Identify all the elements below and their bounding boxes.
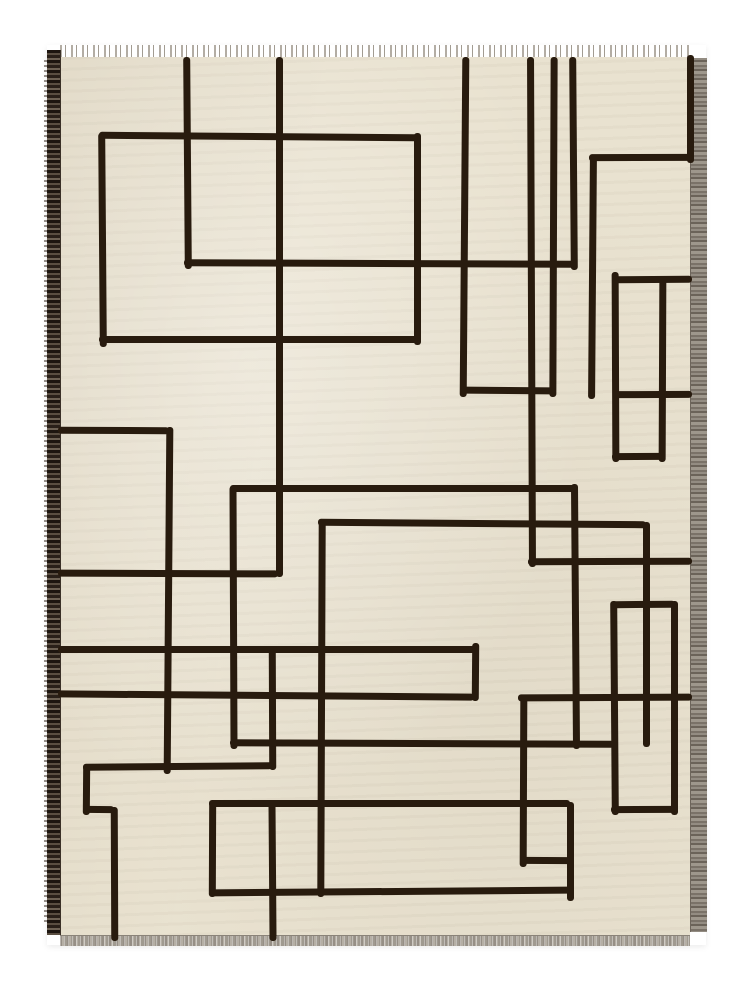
rug-pattern-line (460, 57, 470, 397)
rug-pattern-line (230, 739, 614, 747)
rug-pattern-line (183, 57, 192, 269)
rug-pattern-line (58, 427, 169, 434)
rug-pattern-line (518, 694, 692, 702)
rug-pattern-line (99, 336, 418, 343)
rug-pattern-line (230, 485, 576, 492)
rug-pattern-line (58, 646, 476, 653)
rug-pattern-line (643, 522, 650, 747)
rug-pattern-line (589, 154, 692, 161)
rug-pattern-line (611, 806, 675, 813)
rug-pattern-line (318, 519, 646, 529)
rug-pattern-line (612, 272, 620, 462)
rug-pattern-line (612, 453, 662, 460)
rug-pattern-line (549, 57, 557, 397)
rug-pattern-line (612, 276, 692, 284)
rug-pattern-line (671, 601, 678, 815)
rug-pattern-line (610, 601, 619, 815)
rug-pattern-line (317, 520, 325, 897)
rug-pattern-line (520, 695, 528, 867)
rug-pattern-line (184, 259, 574, 267)
rug-pattern-line (209, 887, 570, 897)
rug-pattern-line (611, 601, 675, 608)
rug-pattern-line (269, 648, 276, 770)
rug-pattern-line (83, 806, 114, 813)
rug-pattern-line (613, 391, 692, 398)
rug-pattern-line (687, 55, 694, 163)
rug-pattern-line (528, 558, 692, 566)
rug-pattern-line (83, 762, 272, 770)
rug-pattern-line (98, 133, 107, 347)
rug-pattern-line (164, 427, 174, 774)
rug-pattern-line (58, 690, 474, 700)
rug-pattern-line (569, 57, 578, 270)
rug-pattern (47, 45, 706, 945)
rug-pattern-line (659, 278, 667, 462)
rug-photo (47, 45, 706, 945)
rug-pattern-line (520, 857, 570, 864)
rug-pattern-line (414, 133, 421, 345)
rug-pattern-line (588, 155, 597, 399)
rug-pattern-line (209, 801, 216, 897)
rug-pattern-line (209, 800, 570, 807)
rug-pattern-line (229, 486, 237, 749)
rug-pattern-line (461, 387, 555, 395)
rug-pattern-line (111, 807, 119, 941)
rug-pattern-line (99, 132, 418, 141)
rug-pattern-line (268, 800, 276, 941)
rug-pattern-line (58, 570, 278, 578)
